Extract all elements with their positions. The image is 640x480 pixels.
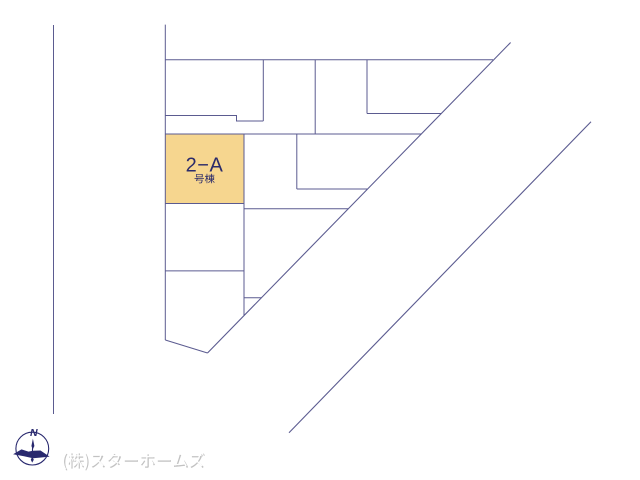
svg-text:2−A: 2−A [186,155,224,177]
svg-text:N: N [30,427,38,439]
